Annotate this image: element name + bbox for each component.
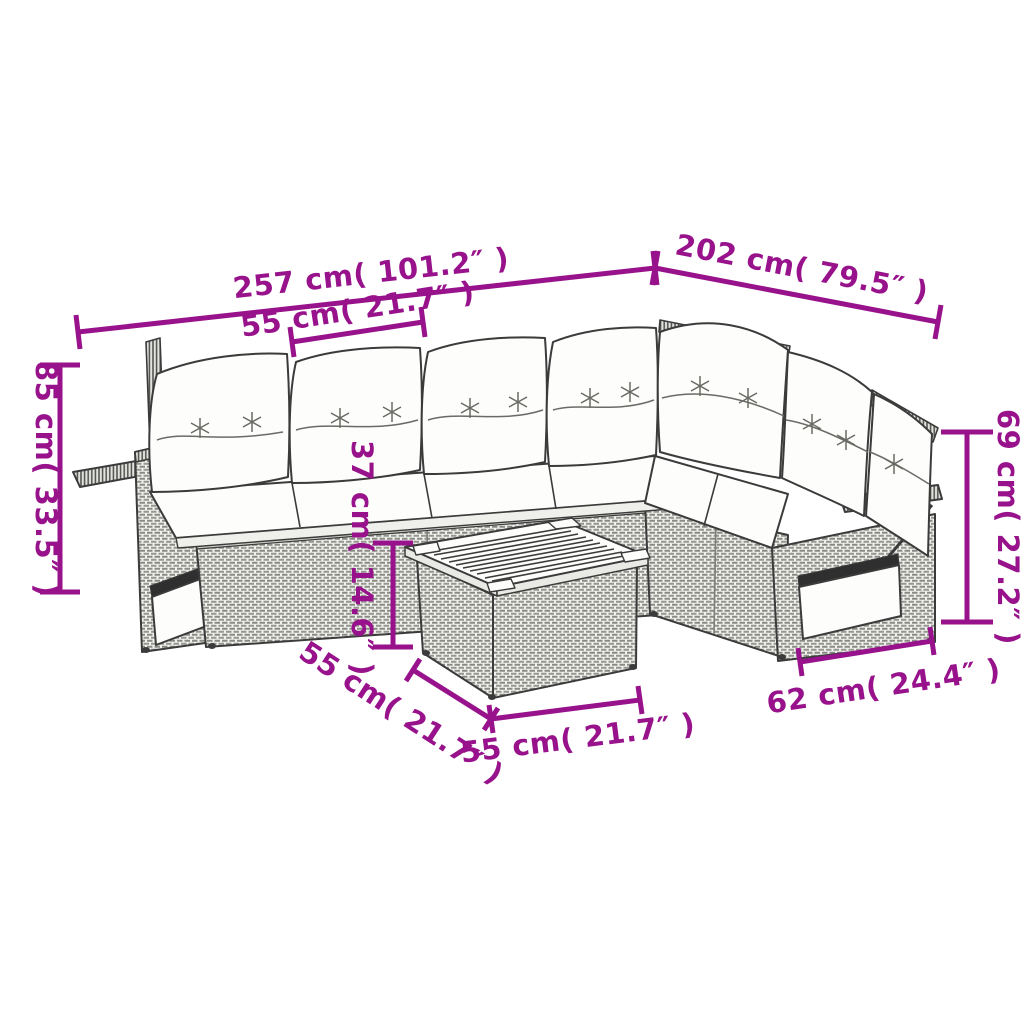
cushion-outline: [782, 352, 872, 516]
back-cushion-6: [782, 352, 872, 516]
diagram-canvas: 257 cm( 101.2″ ) 202 cm( 79.5″ ) 55 cm( …: [0, 0, 1024, 1024]
foot: [629, 664, 637, 670]
dimension-label: 85 cm( 33.5″ ): [29, 361, 63, 597]
dimension-line: [941, 432, 993, 622]
foot: [650, 611, 658, 617]
dimension-label: 69 cm( 27.2″ ): [991, 409, 1024, 645]
dimension-back-height: 69 cm( 27.2″ ): [941, 409, 1024, 645]
back-cushion-4: [547, 327, 658, 466]
back-cushion-1: [149, 354, 289, 492]
cushion-outline: [422, 337, 547, 474]
product-dimension-diagram: 257 cm( 101.2″ ) 202 cm( 79.5″ ) 55 cm( …: [0, 0, 1024, 1024]
dimension-total-depth: 202 cm( 79.5″ ): [652, 227, 941, 339]
dimension-label: 37 cm( 14.6″ ): [345, 440, 379, 676]
back-cushion-3: [422, 337, 547, 474]
cushion-outline: [149, 354, 289, 492]
back-cushion-corner: [658, 323, 788, 478]
foot: [488, 694, 496, 700]
foot: [142, 647, 150, 653]
table-illustration: [405, 518, 650, 700]
foot: [778, 654, 786, 660]
cushion-outline: [658, 323, 788, 478]
cushion-outline: [547, 327, 658, 466]
foot: [208, 643, 216, 649]
foot: [422, 650, 430, 656]
dimension-sofa-height: 85 cm( 33.5″ ): [29, 361, 80, 597]
